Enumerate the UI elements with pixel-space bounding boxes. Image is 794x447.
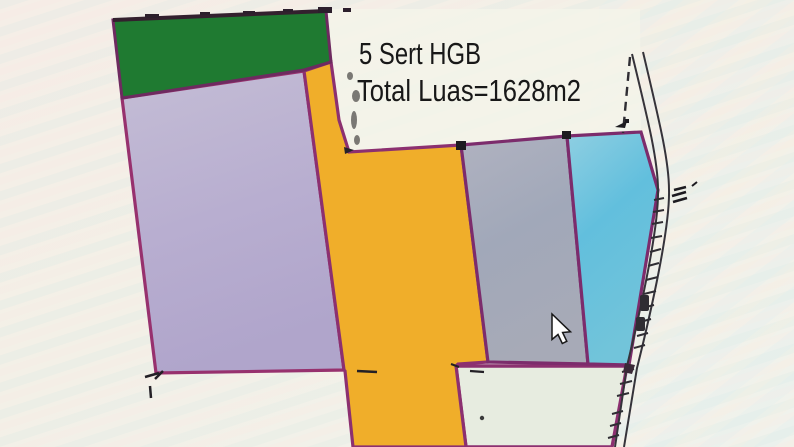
svg-text:Total Luas=1628m2: Total Luas=1628m2 <box>357 73 581 108</box>
svg-text:5 Sert HGB: 5 Sert HGB <box>359 36 481 71</box>
